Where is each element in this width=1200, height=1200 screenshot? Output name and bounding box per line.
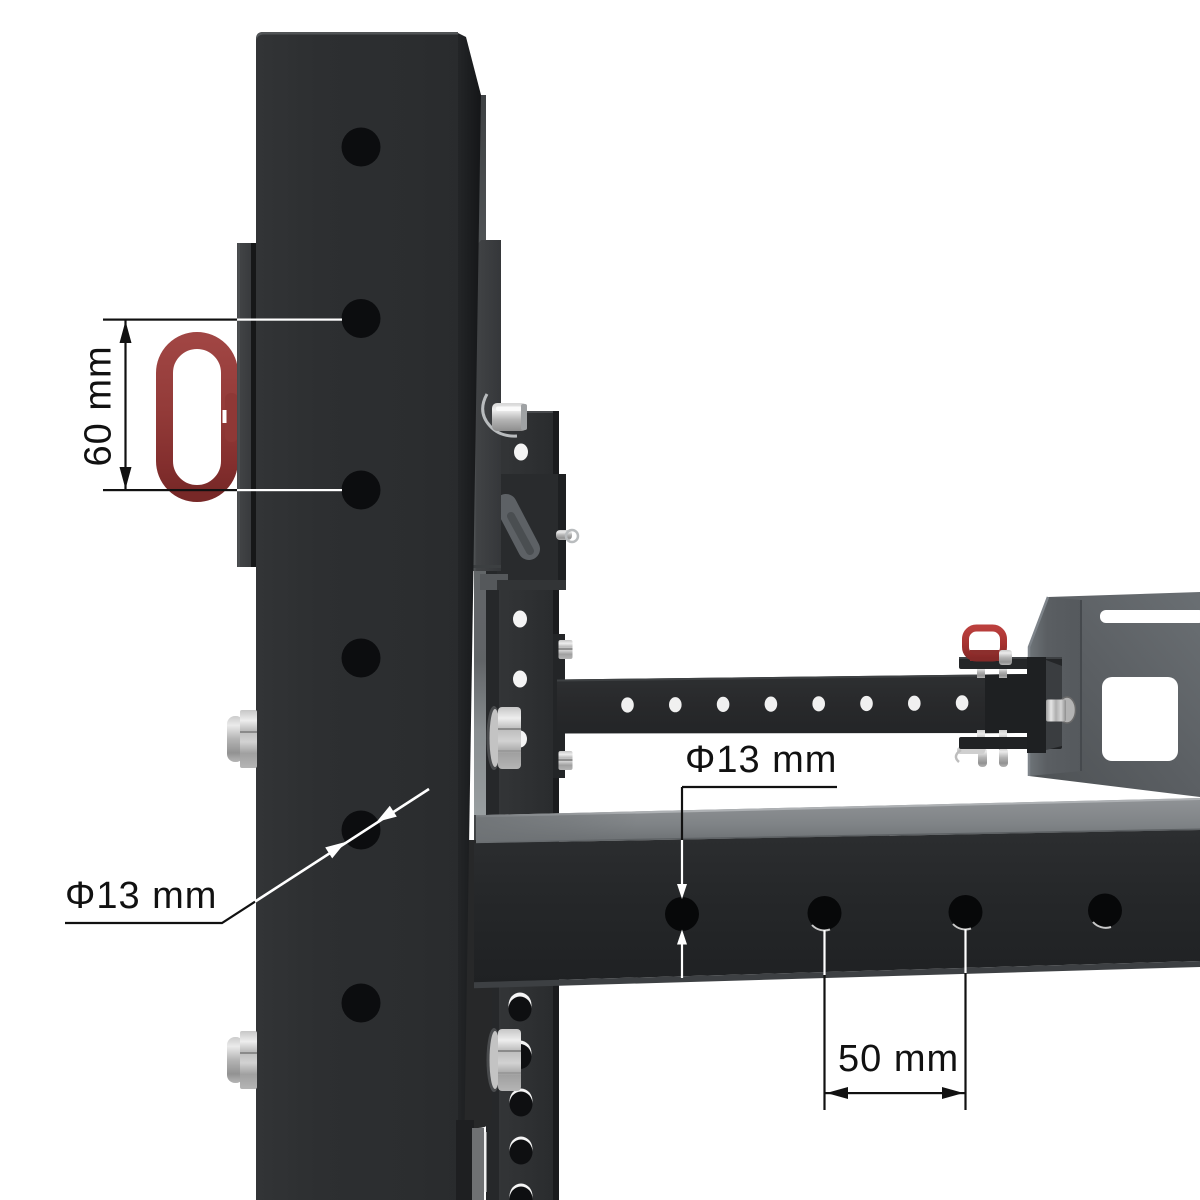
svg-text:60 mm: 60 mm: [78, 345, 120, 466]
svg-text:Φ13 mm: Φ13 mm: [65, 875, 217, 917]
svg-text:50 mm: 50 mm: [838, 1038, 959, 1080]
svg-text:Φ13 mm: Φ13 mm: [685, 739, 837, 781]
